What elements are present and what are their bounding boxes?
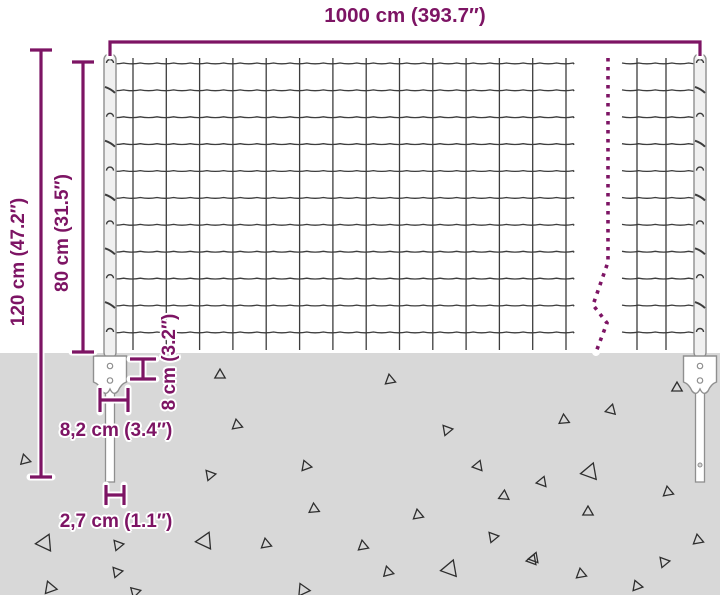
fence-dimension-diagram: 1000 cm (393.7″) 120 cm (47.2″) 80 cm (3…: [0, 0, 720, 595]
dim-label-anchor-plate-width: 8,2 cm (3.4″): [60, 420, 173, 442]
ground: [0, 353, 720, 595]
mesh-right-panel: [622, 58, 706, 350]
dim-label-total-height: 120 cm (47.2″): [8, 198, 30, 326]
dim-label-post-width: 2,7 cm (1.1″): [60, 511, 173, 533]
panel-break-line: [593, 58, 608, 352]
dim-label-anchor-plate-height: 8 cm (3.2″): [159, 314, 181, 411]
dim-label-total-width: 1000 cm (393.7″): [324, 4, 485, 28]
mesh-left-panel: [107, 58, 574, 350]
dim-label-mesh-height: 80 cm (31.5″): [52, 174, 74, 292]
